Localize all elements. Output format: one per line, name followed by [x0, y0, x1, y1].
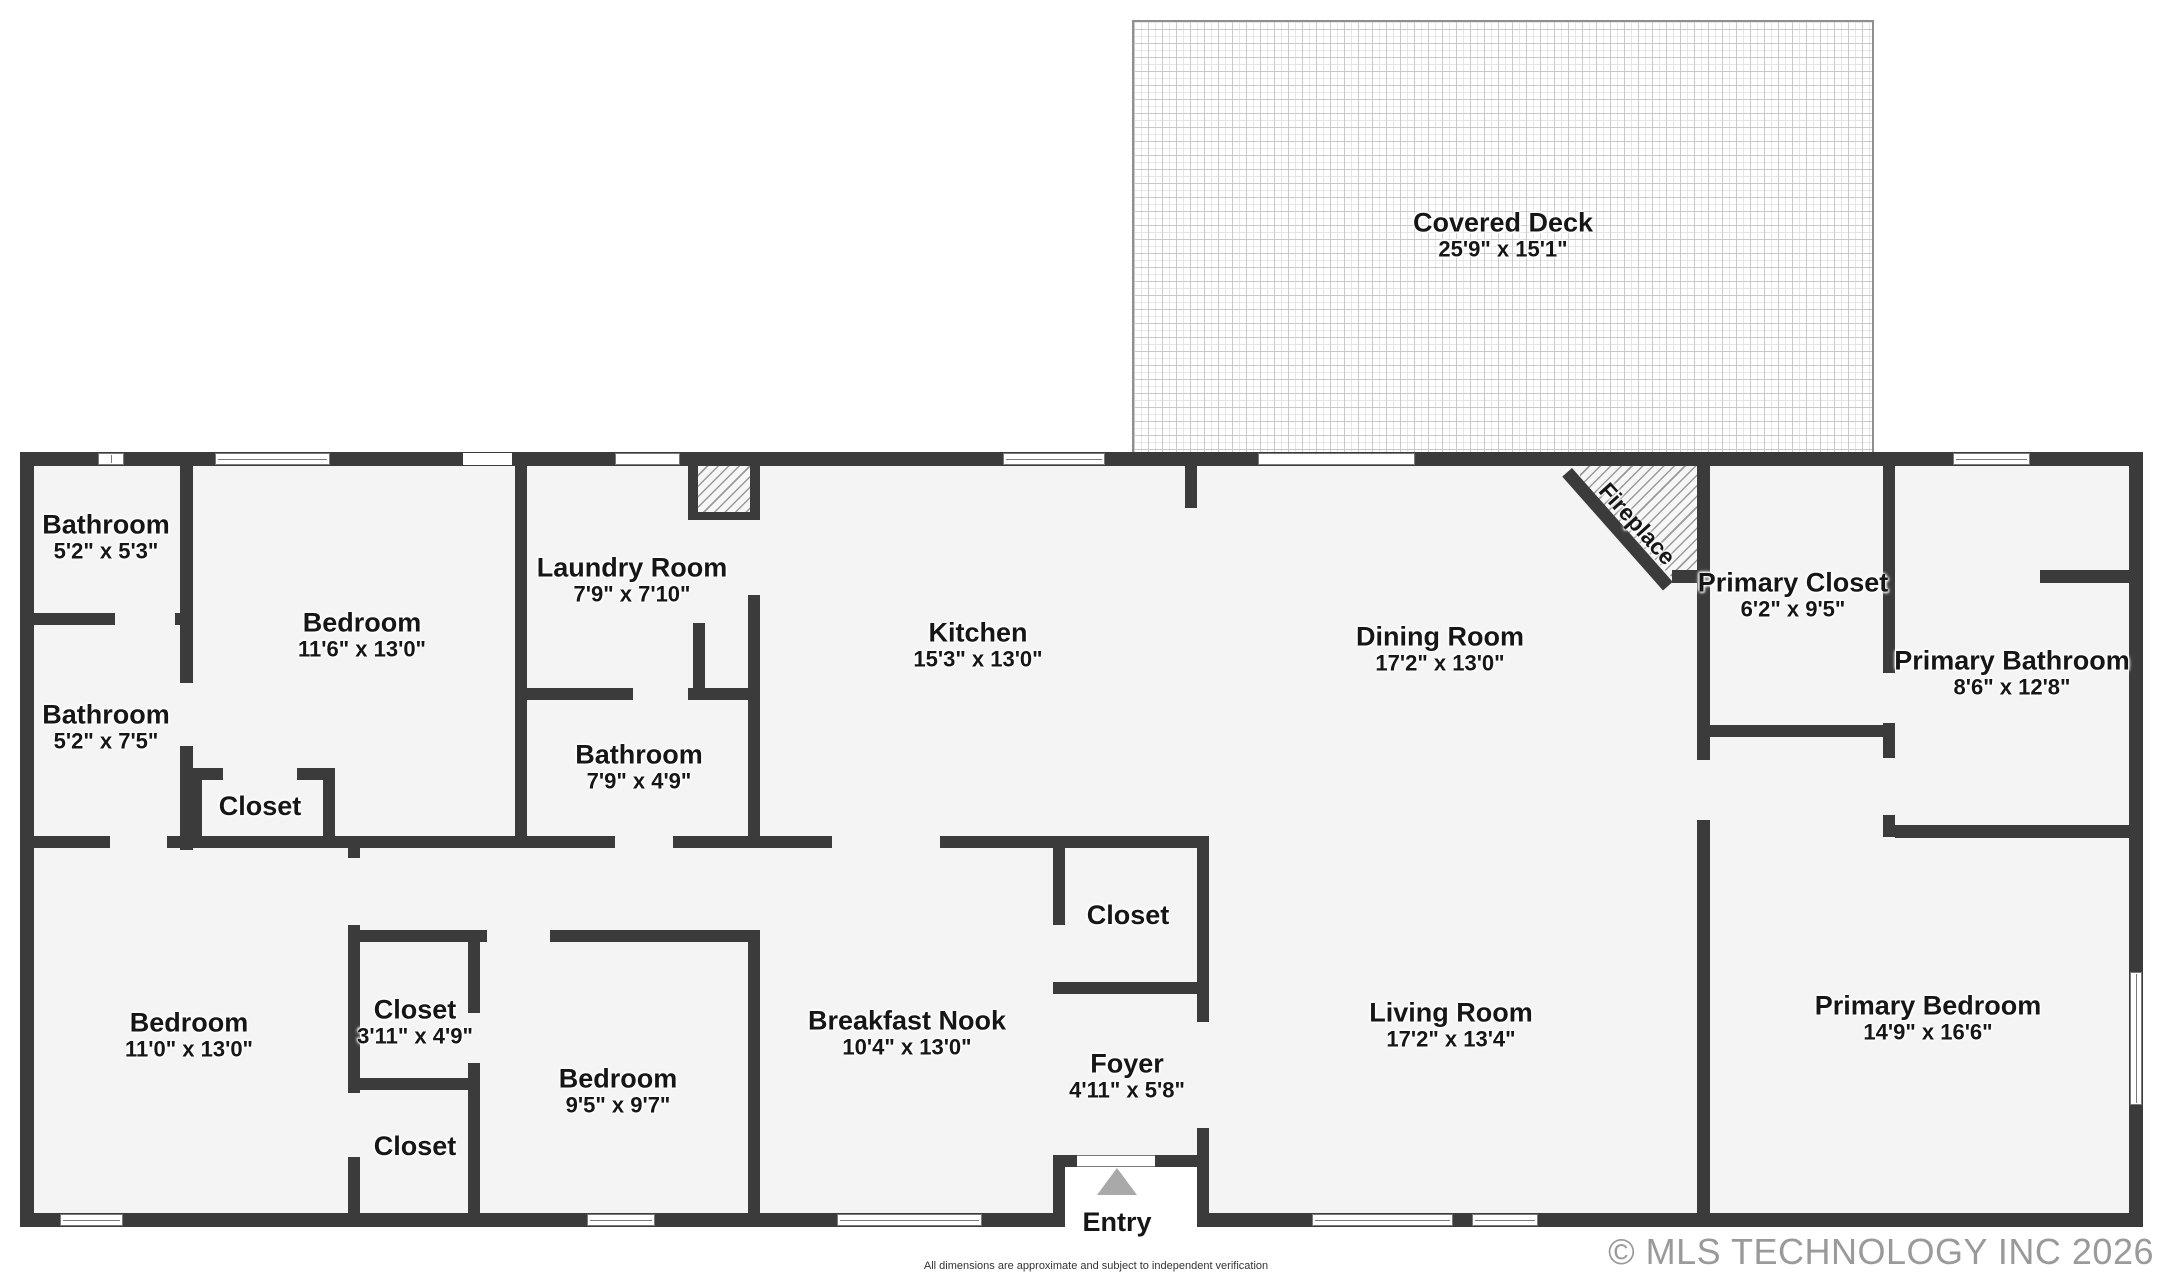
room-label-living: Living Room 17'2" x 13'4" [1369, 998, 1533, 1053]
window [215, 453, 330, 465]
wall [348, 1078, 480, 1090]
door-opening [115, 613, 175, 625]
door-opening [1053, 925, 1065, 982]
door-opening [348, 858, 360, 925]
room-label-kitchen: Kitchen 15'3" x 13'0" [913, 618, 1042, 673]
room-label-laundry: Laundry Room 7'9" x 7'10" [537, 553, 728, 608]
room-label-foyer: Foyer 4'11" x 5'8" [1069, 1049, 1185, 1104]
wall [1710, 725, 1895, 737]
window [1003, 453, 1105, 465]
wall [1053, 848, 1065, 925]
entry-arrow-icon [1097, 1168, 1137, 1195]
room-label-dining: Dining Room 17'2" x 13'0" [1356, 622, 1524, 677]
wall [348, 930, 757, 942]
door-opening [615, 836, 673, 848]
window [1472, 1214, 1538, 1226]
wall [323, 768, 335, 836]
room-label-bedroom-small: Bedroom 9'5" x 9'7" [559, 1064, 678, 1119]
window [98, 453, 124, 465]
wall [748, 930, 760, 1213]
chimney-wall [750, 458, 760, 520]
deck-door [1258, 453, 1415, 465]
window [60, 1214, 123, 1226]
door-opening [487, 930, 550, 942]
door-opening [1697, 760, 1710, 820]
room-label-bedroom-upper: Bedroom 11'6" x 13'0" [298, 608, 426, 663]
door-opening [110, 836, 167, 848]
room-label-bathroom-mid: Bathroom 5'2" x 7'5" [42, 700, 170, 755]
chimney-hatch [698, 466, 750, 512]
window [1953, 453, 2030, 465]
door-opening [180, 683, 193, 746]
room-label-bedroom-left: Bedroom 11'0" x 13'0" [125, 1008, 253, 1063]
disclaimer-text: All dimensions are approximate and subje… [924, 1260, 1268, 1272]
door-opening [633, 688, 688, 700]
wall [748, 595, 760, 848]
window [463, 453, 512, 465]
window [2130, 972, 2142, 1105]
wall [940, 836, 1209, 848]
door-opening [223, 768, 297, 780]
room-label-closet-2: Closet [374, 1131, 457, 1161]
entry-door [1077, 1155, 1155, 1167]
window [615, 453, 680, 465]
room-label-primary-bathroom: Primary Bathroom 8'6" x 12'8" [1894, 646, 2130, 701]
wall [515, 452, 527, 848]
wall [2040, 570, 2129, 583]
room-label-primary-bedroom: Primary Bedroom 14'9" x 16'6" [1815, 991, 2042, 1046]
room-label-bathroom-small: Bathroom 7'9" x 4'9" [575, 740, 703, 795]
room-label-closet-hall: Closet [219, 791, 302, 821]
room-label-covered-deck: Covered Deck 25'9" x 15'1" [1413, 208, 1593, 263]
wall [2129, 452, 2143, 1227]
door-opening [1883, 673, 1895, 723]
copyright-text: © MLS TECHNOLOGY INC 2026 [1608, 1231, 2154, 1273]
window [587, 1214, 655, 1226]
wall [180, 452, 193, 625]
wall [468, 930, 480, 1213]
door-opening [1883, 758, 1895, 815]
floor-plan: Covered Deck 25'9" x 15'1" Bathroom 5'2"… [0, 0, 2160, 1279]
window [1312, 1214, 1453, 1226]
wall [1197, 1128, 1209, 1227]
wall [1053, 982, 1209, 994]
wall [1053, 1155, 1065, 1227]
room-label-closet-1: Closet 3'11" x 4'9" [357, 995, 473, 1050]
entry-label: Entry [1082, 1207, 1151, 1237]
room-label-bathroom-top: Bathroom 5'2" x 5'3" [42, 510, 170, 565]
wall [190, 768, 202, 836]
wall [1197, 836, 1209, 1022]
door-opening [348, 1093, 360, 1157]
wall [1895, 825, 2129, 838]
room-label-breakfast-nook: Breakfast Nook 10'4" x 13'0" [808, 1006, 1006, 1061]
room-label-closet-foyer: Closet [1087, 900, 1170, 930]
window [837, 1214, 982, 1226]
wall [1185, 466, 1197, 508]
room-label-primary-closet: Primary Closet 6'2" x 9'5" [1698, 568, 1889, 623]
